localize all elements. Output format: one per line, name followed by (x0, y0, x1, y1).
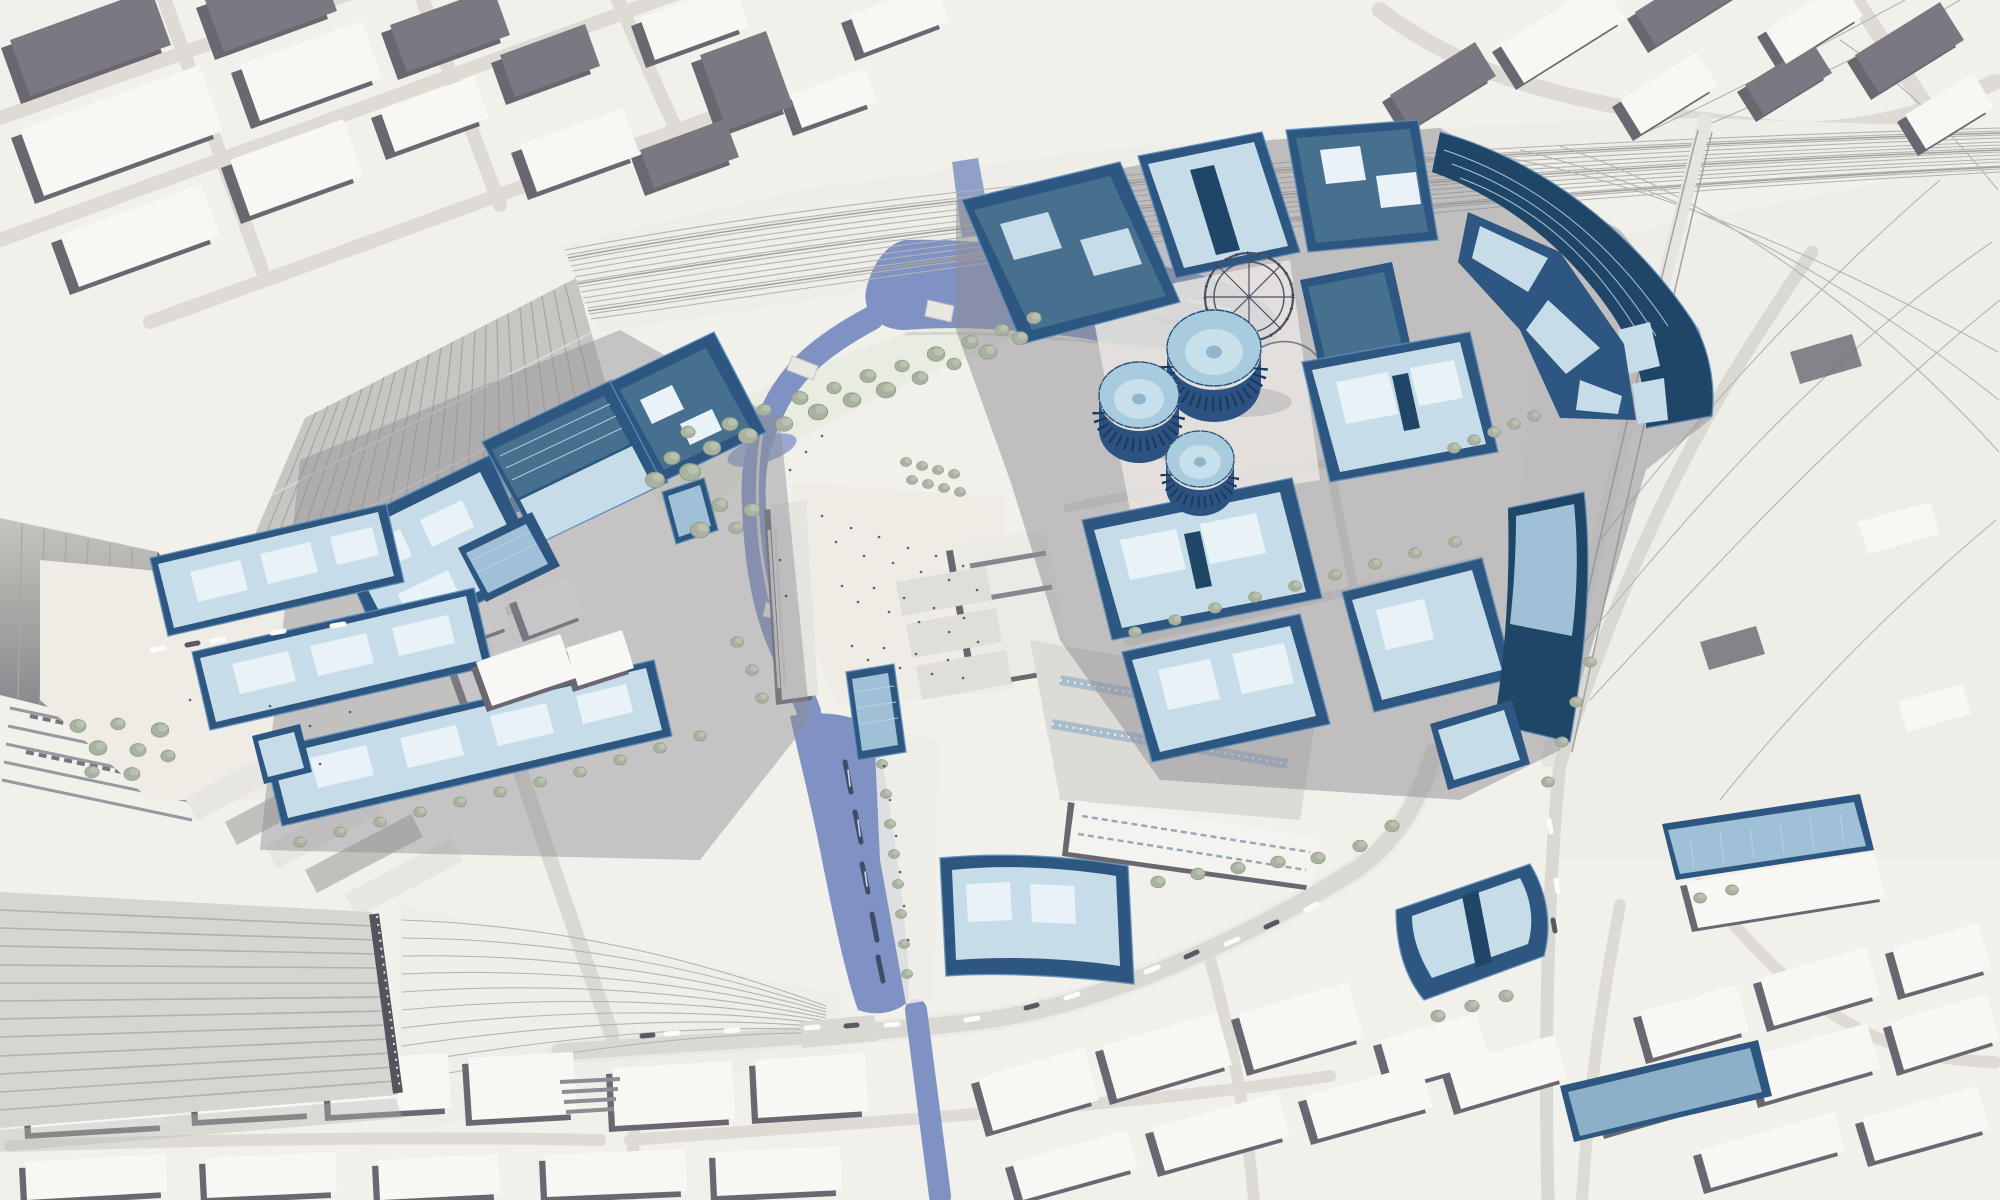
southern-trainshed (0, 892, 398, 1128)
aerial-masterplan-rendering (0, 0, 2000, 1200)
masterplan-scene (0, 0, 2000, 1200)
